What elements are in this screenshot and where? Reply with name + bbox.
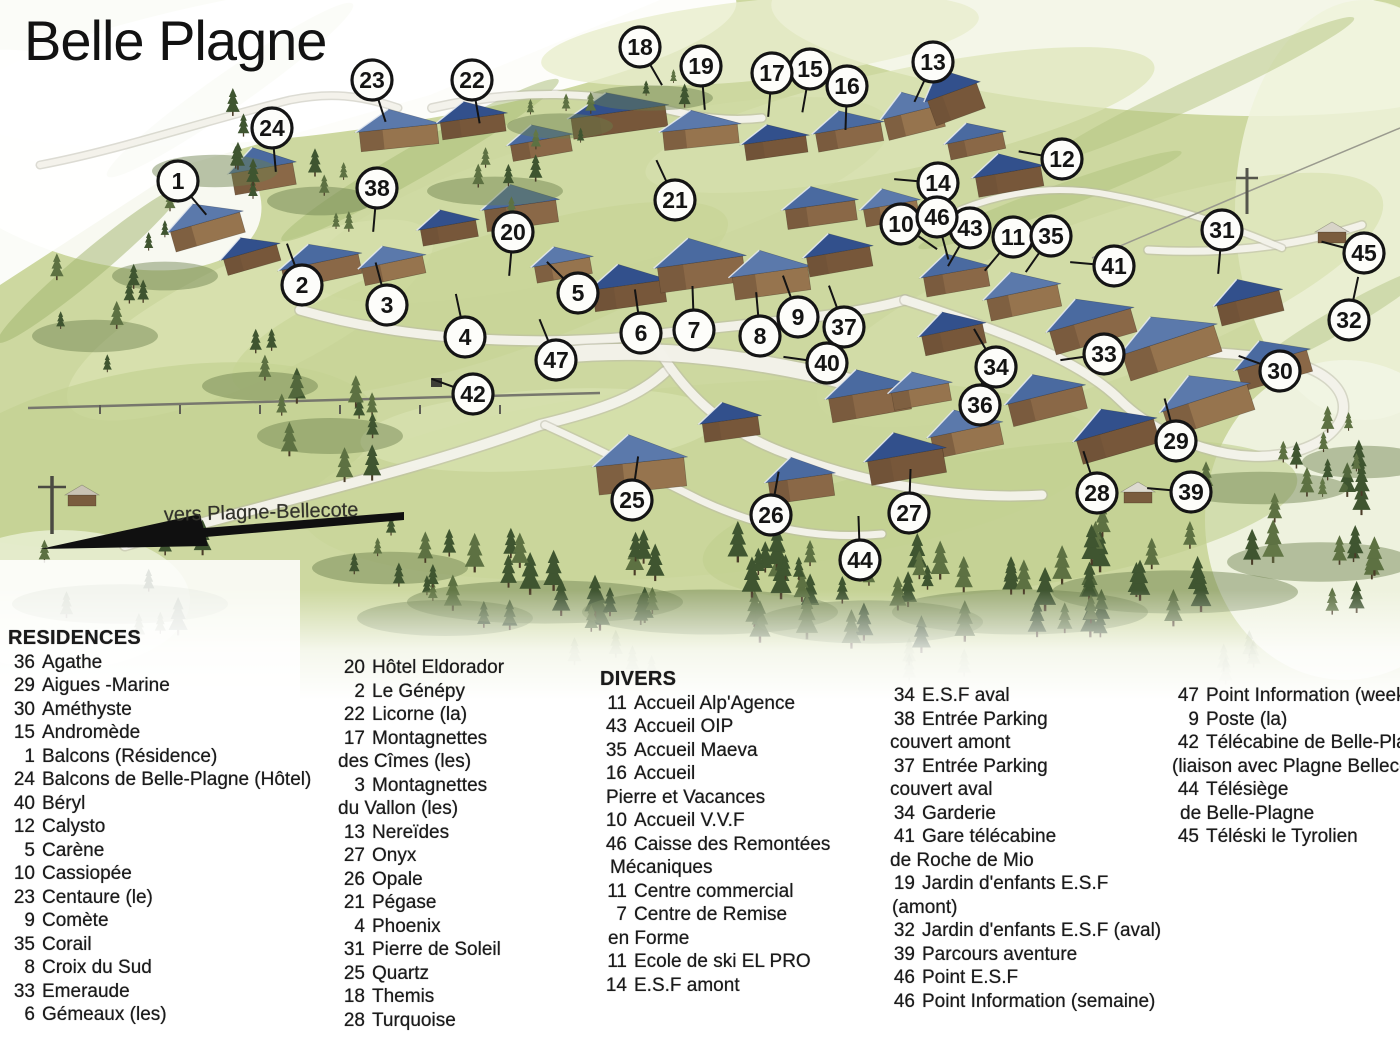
legend-item-label: Garderie xyxy=(922,803,996,824)
legend-item-number: 39 xyxy=(888,943,915,967)
map-marker-number-28: 28 xyxy=(1084,480,1110,506)
legend-item-label: Montagnettes xyxy=(372,728,487,749)
legend-item-label: Turquoise xyxy=(372,1010,456,1031)
map-marker-16: 16 xyxy=(827,66,867,106)
map-marker-number-7: 7 xyxy=(688,317,701,343)
legend-item-number: 10 xyxy=(600,809,627,833)
legend-item: 3Montagnettes xyxy=(338,774,504,798)
legend-item-label: Point Information (week-end) xyxy=(1206,685,1400,706)
legend-item: 21Pégase xyxy=(338,891,504,915)
legend-item-label: Télésiège xyxy=(1206,779,1288,800)
legend-item-label: Licorne (la) xyxy=(372,704,467,725)
legend-item-label: Accueil Alp'Agence xyxy=(634,693,795,714)
legend-item: 35Corail xyxy=(8,933,311,957)
legend-item: 25Quartz xyxy=(338,962,504,986)
map-marker-number-8: 8 xyxy=(754,323,767,349)
map-marker-number-26: 26 xyxy=(758,502,784,528)
legend-item: 47Point Information (week-end) xyxy=(1172,684,1400,708)
map-marker-38: 38 xyxy=(357,168,397,208)
map-marker-number-18: 18 xyxy=(627,34,653,60)
legend-item-number: 24 xyxy=(8,768,35,792)
legend-item: 6Gémeaux (les) xyxy=(8,1003,311,1027)
legend-item: 46Point Information (semaine) xyxy=(888,990,1161,1014)
legend-item: 24Balcons de Belle-Plagne (Hôtel) xyxy=(8,768,311,792)
legend-item-label: Montagnettes xyxy=(372,775,487,796)
legend-item-label: Hôtel Eldorador xyxy=(372,657,504,678)
legend-item-label: Pégase xyxy=(372,892,436,913)
map-marker-33: 33 xyxy=(1084,334,1124,374)
legend-column-2: 20Hôtel Eldorador2Le Génépy22Licorne (la… xyxy=(338,656,504,1032)
map-marker-number-20: 20 xyxy=(500,219,526,245)
legend-item: 34E.S.F aval xyxy=(888,684,1161,708)
map-marker-32: 32 xyxy=(1329,300,1369,340)
legend-item: 46Point E.S.F xyxy=(888,966,1161,990)
legend-item-label: Parcours aventure xyxy=(922,944,1077,965)
legend-column-4: 34E.S.F aval38Entrée Parkingcouvert amon… xyxy=(888,684,1161,1013)
map-marker-28: 28 xyxy=(1077,473,1117,513)
map-marker-number-21: 21 xyxy=(662,187,688,213)
legend-item: 37Entrée Parking xyxy=(888,755,1161,779)
map-marker-number-16: 16 xyxy=(834,73,860,99)
map-marker-number-2: 2 xyxy=(296,272,309,298)
legend-item: couvert aval xyxy=(888,778,1161,802)
legend-item: 11Centre commercial xyxy=(600,880,830,904)
legend-item-label: de Belle-Plagne xyxy=(1180,803,1314,824)
legend-item-number: 25 xyxy=(338,962,365,986)
legend-item-number: 11 xyxy=(600,880,627,904)
legend-item: 1Balcons (Résidence) xyxy=(8,745,311,769)
legend-item-label: Agathe xyxy=(42,652,102,673)
legend-item: de Roche de Mio xyxy=(888,849,1161,873)
legend-item: 11Ecole de ski EL PRO xyxy=(600,950,830,974)
legend-item: 27Onyx xyxy=(338,844,504,868)
legend-item-number: 20 xyxy=(338,656,365,680)
legend-item-number: 35 xyxy=(600,739,627,763)
legend-item-label: (liaison avec Plagne Bellecôte) xyxy=(1172,756,1400,777)
legend-item-number: 18 xyxy=(338,985,365,1009)
map-marker-41: 41 xyxy=(1094,246,1134,286)
legend-item-number: 5 xyxy=(8,839,35,863)
map-marker-37: 37 xyxy=(824,307,864,347)
legend-item: 12Calysto xyxy=(8,815,311,839)
legend-item-label: Aigues -Marine xyxy=(42,675,170,696)
legend-item: (amont) xyxy=(888,896,1161,920)
legend-item-label: Béryl xyxy=(42,793,85,814)
legend-item: 46Caisse des Remontées xyxy=(600,833,830,857)
legend-item: des Cîmes (les) xyxy=(338,750,504,774)
legend-item-label: Emeraude xyxy=(42,981,130,1002)
map-marker-26: 26 xyxy=(751,495,791,535)
map-marker-number-34: 34 xyxy=(983,354,1009,380)
belle-plagne-resort-map-page: vers Plagne-Bellecote 123456789101112131… xyxy=(0,0,1400,1050)
legend-item-label: Comète xyxy=(42,910,109,931)
legend-item-label: Pierre et Vacances xyxy=(606,787,765,808)
legend-item-label: Cassiopée xyxy=(42,863,132,884)
legend-item-number: 26 xyxy=(338,868,365,892)
map-marker-25: 25 xyxy=(612,480,652,520)
legend-item-label: Mécaniques xyxy=(610,857,712,878)
map-marker-34: 34 xyxy=(976,347,1016,387)
map-marker-number-45: 45 xyxy=(1351,240,1377,266)
legend-item: 5Carène xyxy=(8,839,311,863)
resort-map-illustration: vers Plagne-Bellecote 123456789101112131… xyxy=(0,0,1400,700)
legend-item: 20Hôtel Eldorador xyxy=(338,656,504,680)
map-marker-27: 27 xyxy=(889,493,929,533)
map-marker-number-13: 13 xyxy=(920,49,946,75)
legend-item: 28Turquoise xyxy=(338,1009,504,1033)
legend-item-number: 3 xyxy=(338,774,365,798)
map-marker-number-47: 47 xyxy=(543,347,569,373)
legend-item-number: 38 xyxy=(888,708,915,732)
legend-item: 41Gare télécabine xyxy=(888,825,1161,849)
legend-item-label: Point E.S.F xyxy=(922,967,1018,988)
legend-item: Pierre et Vacances xyxy=(600,786,830,810)
map-marker-number-27: 27 xyxy=(896,500,922,526)
legend-item-label: Calysto xyxy=(42,816,105,837)
legend-item: 4Phoenix xyxy=(338,915,504,939)
legend-item-label: Phoenix xyxy=(372,916,441,937)
legend-item: 42Télécabine de Belle-Plagne xyxy=(1172,731,1400,755)
legend-item-number: 13 xyxy=(338,821,365,845)
legend-item-number: 14 xyxy=(600,974,627,998)
legend-item-label: Gémeaux (les) xyxy=(42,1004,167,1025)
map-marker-number-10: 10 xyxy=(888,211,914,237)
page-title: Belle Plagne xyxy=(24,8,326,73)
legend-item: 39Parcours aventure xyxy=(888,943,1161,967)
legend-item-number: 17 xyxy=(338,727,365,751)
map-marker-number-37: 37 xyxy=(831,314,857,340)
legend-item-label: Entrée Parking xyxy=(922,709,1048,730)
legend-item: 18Themis xyxy=(338,985,504,1009)
legend-item-label: couvert amont xyxy=(890,732,1010,753)
map-marker-20: 20 xyxy=(493,212,533,252)
legend-item-number: 1 xyxy=(8,745,35,769)
legend-item-label: Jardin d'enfants E.S.F (aval) xyxy=(922,920,1161,941)
legend-item-label: E.S.F aval xyxy=(922,685,1010,706)
legend-column-3: DIVERS11Accueil Alp'Agence43Accueil OIP3… xyxy=(600,668,830,997)
legend-item-number: 23 xyxy=(8,886,35,910)
legend-item-number: 27 xyxy=(338,844,365,868)
legend-item-label: Carène xyxy=(42,840,104,861)
map-marker-number-33: 33 xyxy=(1091,341,1117,367)
map-marker-9: 9 xyxy=(778,297,818,337)
legend-item: 38Entrée Parking xyxy=(888,708,1161,732)
legend-item-label: Améthyste xyxy=(42,699,132,720)
map-marker-22: 22 xyxy=(452,60,492,100)
map-marker-3: 3 xyxy=(367,285,407,325)
map-marker-13: 13 xyxy=(913,42,953,82)
map-marker-number-17: 17 xyxy=(759,60,785,86)
legend-item-number: 11 xyxy=(600,950,627,974)
legend-item: 26Opale xyxy=(338,868,504,892)
legend-item: 9Poste (la) xyxy=(1172,708,1400,732)
map-marker-number-9: 9 xyxy=(792,304,805,330)
map-marker-39: 39 xyxy=(1171,472,1211,512)
legend-item-number: 45 xyxy=(1172,825,1199,849)
map-marker-1: 1 xyxy=(158,161,198,201)
map-marker-number-40: 40 xyxy=(814,350,840,376)
legend-item-label: Centaure (le) xyxy=(42,887,153,908)
map-marker-11: 11 xyxy=(993,217,1033,257)
legend-item-number: 16 xyxy=(600,762,627,786)
map-marker-29: 29 xyxy=(1156,421,1196,461)
legend-item: 19Jardin d'enfants E.S.F xyxy=(888,872,1161,896)
map-marker-42: 42 xyxy=(453,374,493,414)
map-marker-number-19: 19 xyxy=(688,53,714,79)
legend-item-label: du Vallon (les) xyxy=(338,798,458,819)
legend-header: DIVERS xyxy=(600,668,830,692)
legend-item-number: 36 xyxy=(8,651,35,675)
map-marker-24: 24 xyxy=(252,108,292,148)
legend-item: 8Croix du Sud xyxy=(8,956,311,980)
legend-item-label: en Forme xyxy=(608,928,689,949)
map-marker-number-12: 12 xyxy=(1049,146,1075,172)
legend-item-number: 28 xyxy=(338,1009,365,1033)
legend-item-label: (amont) xyxy=(892,897,957,918)
map-marker-number-42: 42 xyxy=(460,381,486,407)
map-marker-number-5: 5 xyxy=(572,280,585,306)
map-marker-number-31: 31 xyxy=(1209,217,1235,243)
legend-item-label: Accueil OIP xyxy=(634,716,733,737)
legend-item-number: 41 xyxy=(888,825,915,849)
legend-item-label: Jardin d'enfants E.S.F xyxy=(922,873,1108,894)
map-marker-44: 44 xyxy=(840,540,880,580)
map-marker-number-25: 25 xyxy=(619,487,645,513)
legend-item-label: Entrée Parking xyxy=(922,756,1048,777)
legend-header: RESIDENCES xyxy=(8,627,311,651)
legend-item-number: 11 xyxy=(600,692,627,716)
legend-item-label: Le Génépy xyxy=(372,681,465,702)
legend-item-label: E.S.F amont xyxy=(634,975,740,996)
legend-item: 32Jardin d'enfants E.S.F (aval) xyxy=(888,919,1161,943)
map-marker-19: 19 xyxy=(681,46,721,86)
map-marker-21: 21 xyxy=(655,180,695,220)
legend-item-label: Point Information (semaine) xyxy=(922,991,1155,1012)
legend-item-label: Centre de Remise xyxy=(634,904,787,925)
legend-item: 11Accueil Alp'Agence xyxy=(600,692,830,716)
legend-item-number: 7 xyxy=(600,903,627,927)
legend-item-number: 35 xyxy=(8,933,35,957)
map-marker-number-22: 22 xyxy=(459,67,485,93)
legend-item-label: Pierre de Soleil xyxy=(372,939,501,960)
map-marker-number-14: 14 xyxy=(925,170,951,196)
legend-item-number: 10 xyxy=(8,862,35,886)
legend-item-number: 31 xyxy=(338,938,365,962)
legend-item-number: 34 xyxy=(888,802,915,826)
legend-item: en Forme xyxy=(600,927,830,951)
legend-item-number: 9 xyxy=(8,909,35,933)
map-marker-2: 2 xyxy=(282,265,322,305)
legend-item-number: 22 xyxy=(338,703,365,727)
legend-item-number: 40 xyxy=(8,792,35,816)
map-marker-number-1: 1 xyxy=(172,168,185,194)
map-marker-45: 45 xyxy=(1344,233,1384,273)
legend-item: 33Emeraude xyxy=(8,980,311,1004)
legend-item: 13Nereïdes xyxy=(338,821,504,845)
legend-item: 30Améthyste xyxy=(8,698,311,722)
legend-item-number: 6 xyxy=(8,1003,35,1027)
legend-item-number: 21 xyxy=(338,891,365,915)
legend-item-number: 32 xyxy=(888,919,915,943)
map-marker-31: 31 xyxy=(1202,210,1242,250)
map-marker-40: 40 xyxy=(807,343,847,383)
legend-item-label: Gare télécabine xyxy=(922,826,1056,847)
map-marker-46: 46 xyxy=(917,197,957,237)
map-marker-5: 5 xyxy=(558,273,598,313)
map-marker-number-43: 43 xyxy=(957,215,983,241)
legend-item-label: Balcons de Belle-Plagne (Hôtel) xyxy=(42,769,311,790)
legend-item: 7Centre de Remise xyxy=(600,903,830,927)
map-marker-30: 30 xyxy=(1260,351,1300,391)
map-marker-35: 35 xyxy=(1031,216,1071,256)
map-marker-36: 36 xyxy=(960,385,1000,425)
legend-item-label: Téléski le Tyrolien xyxy=(1206,826,1358,847)
legend-item-label: Opale xyxy=(372,869,423,890)
legend-item-label: des Cîmes (les) xyxy=(338,751,471,772)
legend-item-number: 42 xyxy=(1172,731,1199,755)
legend-item: 2Le Génépy xyxy=(338,680,504,704)
legend-item: 34Garderie xyxy=(888,802,1161,826)
map-marker-6: 6 xyxy=(621,313,661,353)
legend-item-label: Balcons (Résidence) xyxy=(42,746,217,767)
map-marker-10: 10 xyxy=(881,204,921,244)
legend-item: 45Téléski le Tyrolien xyxy=(1172,825,1400,849)
legend-item-number: 46 xyxy=(600,833,627,857)
legend-item-label: Corail xyxy=(42,934,92,955)
legend-item-number: 29 xyxy=(8,674,35,698)
map-marker-number-4: 4 xyxy=(459,324,472,350)
map-marker-number-30: 30 xyxy=(1267,358,1293,384)
legend-item-number: 46 xyxy=(888,990,915,1014)
legend-item: 22Licorne (la) xyxy=(338,703,504,727)
legend-item-number: 46 xyxy=(888,966,915,990)
legend-item-label: Caisse des Remontées xyxy=(634,834,830,855)
legend-item-label: Accueil Maeva xyxy=(634,740,758,761)
map-marker-number-6: 6 xyxy=(635,320,648,346)
legend-item: 17Montagnettes xyxy=(338,727,504,751)
legend-item: 10Cassiopée xyxy=(8,862,311,886)
map-marker-number-3: 3 xyxy=(381,292,394,318)
legend-item: Mécaniques xyxy=(600,856,830,880)
legend-item-number: 44 xyxy=(1172,778,1199,802)
map-marker-17: 17 xyxy=(752,53,792,93)
map-marker-number-38: 38 xyxy=(364,175,390,201)
map-marker-number-41: 41 xyxy=(1101,253,1127,279)
map-marker-number-44: 44 xyxy=(847,547,873,573)
legend-item-number: 9 xyxy=(1172,708,1199,732)
legend-item: 23Centaure (le) xyxy=(8,886,311,910)
legend-item: 9Comète xyxy=(8,909,311,933)
legend-item: (liaison avec Plagne Bellecôte) xyxy=(1172,755,1400,779)
legend-item-label: Accueil xyxy=(634,763,695,784)
map-marker-4: 4 xyxy=(445,317,485,357)
legend-item-number: 12 xyxy=(8,815,35,839)
legend-item: 35Accueil Maeva xyxy=(600,739,830,763)
map-marker-7: 7 xyxy=(674,310,714,350)
legend-item-number: 15 xyxy=(8,721,35,745)
map-marker-number-39: 39 xyxy=(1178,479,1204,505)
legend-item: de Belle-Plagne xyxy=(1172,802,1400,826)
legend-item: du Vallon (les) xyxy=(338,797,504,821)
legend-item-label: Centre commercial xyxy=(634,881,793,902)
legend-item-label: Themis xyxy=(372,986,434,1007)
legend-item-label: Poste (la) xyxy=(1206,709,1287,730)
legend-item-label: Nereïdes xyxy=(372,822,449,843)
legend-item-number: 34 xyxy=(888,684,915,708)
map-marker-number-36: 36 xyxy=(967,392,993,418)
legend-item-number: 8 xyxy=(8,956,35,980)
map-marker-number-24: 24 xyxy=(259,115,285,141)
legend-item-number: 37 xyxy=(888,755,915,779)
legend-item: 15Andromède xyxy=(8,721,311,745)
map-marker-number-15: 15 xyxy=(797,56,823,82)
legend-item-number: 19 xyxy=(888,872,915,896)
legend-item-label: Andromède xyxy=(42,722,140,743)
legend-item: 10Accueil V.V.F xyxy=(600,809,830,833)
map-marker-number-35: 35 xyxy=(1038,223,1064,249)
legend-item-number: 30 xyxy=(8,698,35,722)
map-marker-number-23: 23 xyxy=(359,67,385,93)
legend-item: 36Agathe xyxy=(8,651,311,675)
legend-column-5: 47Point Information (week-end)9Poste (la… xyxy=(1172,684,1400,849)
legend-item-label: Ecole de ski EL PRO xyxy=(634,951,811,972)
legend-item-number: 4 xyxy=(338,915,365,939)
legend-item: 44Télésiège xyxy=(1172,778,1400,802)
map-marker-12: 12 xyxy=(1042,139,1082,179)
map-marker-number-32: 32 xyxy=(1336,307,1362,333)
legend-item: 14E.S.F amont xyxy=(600,974,830,998)
legend-item-label: Télécabine de Belle-Plagne xyxy=(1206,732,1400,753)
legend-item: couvert amont xyxy=(888,731,1161,755)
legend-item: 31Pierre de Soleil xyxy=(338,938,504,962)
legend-item-label: couvert aval xyxy=(890,779,992,800)
map-marker-8: 8 xyxy=(740,316,780,356)
legend-item: 29Aigues -Marine xyxy=(8,674,311,698)
legend-item-label: Croix du Sud xyxy=(42,957,152,978)
legend-item-number: 2 xyxy=(338,680,365,704)
legend-item-number: 33 xyxy=(8,980,35,1004)
legend-item-number: 47 xyxy=(1172,684,1199,708)
legend-item-label: de Roche de Mio xyxy=(890,850,1034,871)
map-marker-18: 18 xyxy=(620,27,660,67)
map-marker-23: 23 xyxy=(352,60,392,100)
legend-item: 40Béryl xyxy=(8,792,311,816)
map-marker-number-11: 11 xyxy=(1001,224,1026,250)
legend-item-label: Accueil V.V.F xyxy=(634,810,745,831)
map-marker-number-46: 46 xyxy=(924,204,950,230)
legend-item-number: 43 xyxy=(600,715,627,739)
map-marker-15: 15 xyxy=(790,49,830,89)
map-marker-number-29: 29 xyxy=(1163,428,1189,454)
map-marker-47: 47 xyxy=(536,340,576,380)
legend-item-label: Onyx xyxy=(372,845,416,866)
legend-column-1: RESIDENCES36Agathe29Aigues -Marine30Amét… xyxy=(8,627,311,1027)
legend-item: 43Accueil OIP xyxy=(600,715,830,739)
legend-item-label: Quartz xyxy=(372,963,429,984)
legend-item: 16Accueil xyxy=(600,762,830,786)
